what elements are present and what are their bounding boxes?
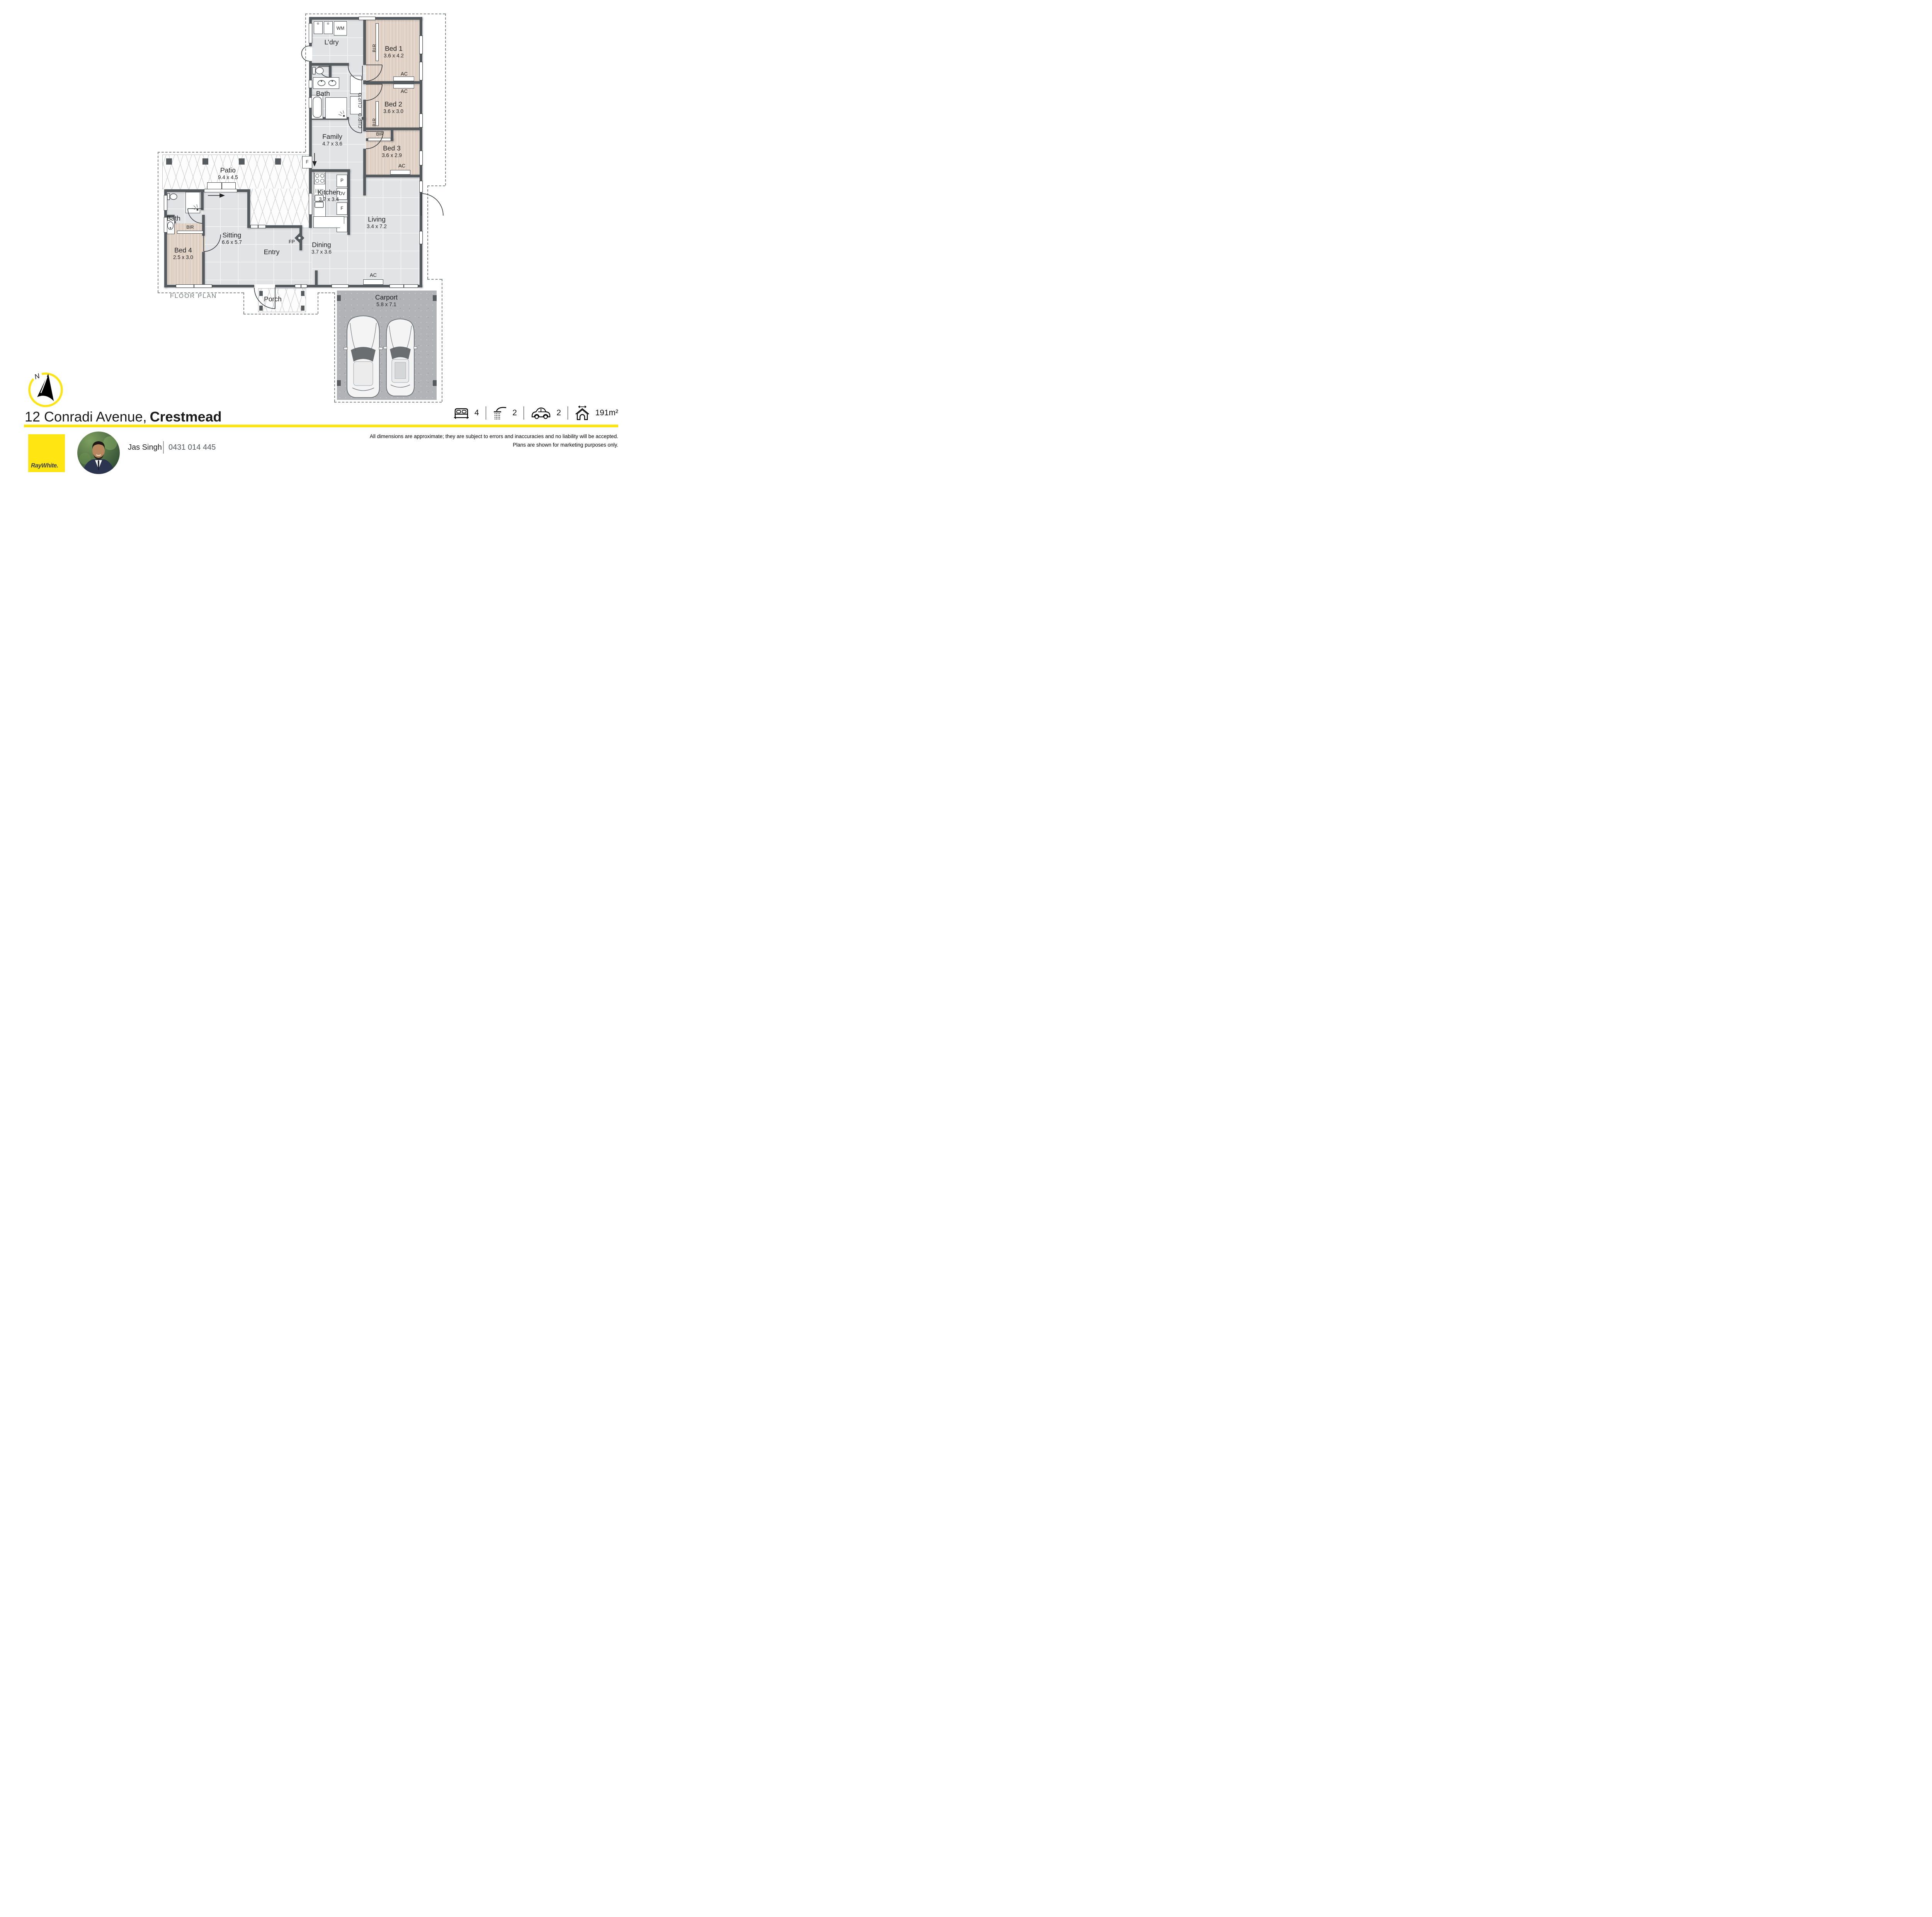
window-bed1-b bbox=[419, 62, 423, 80]
address-suburb: Crestmead bbox=[150, 409, 222, 425]
bir4-panel bbox=[177, 231, 203, 234]
carport-post-4 bbox=[433, 380, 437, 386]
window-bath2-left bbox=[164, 195, 167, 211]
porch-post-1 bbox=[259, 291, 263, 296]
porch-post-2 bbox=[301, 291, 304, 296]
summary-divider-1 bbox=[486, 406, 486, 420]
summary-divider-2 bbox=[524, 406, 524, 420]
car-icon bbox=[531, 407, 551, 419]
laundry-tub-2 bbox=[324, 21, 333, 34]
house-area-icon bbox=[575, 406, 590, 420]
window-entry-b bbox=[301, 284, 307, 288]
boundary-patio-top bbox=[158, 152, 305, 153]
boundary-right-mid bbox=[427, 185, 428, 279]
wall-nook-right bbox=[329, 66, 332, 77]
fp-label: FP bbox=[289, 239, 295, 245]
wall-bed1-bed2 bbox=[366, 81, 420, 84]
wall-bir3-stub bbox=[391, 130, 393, 141]
room-label-bath2: Bath bbox=[167, 215, 180, 223]
wall-bed3-bottom bbox=[363, 175, 420, 177]
patio-post-1 bbox=[166, 158, 172, 165]
showers-count: 2 bbox=[512, 408, 517, 418]
ac-dining-label: AC bbox=[370, 272, 377, 278]
fridge-family: F bbox=[302, 156, 312, 168]
pantry: P bbox=[337, 175, 347, 187]
boundary-right-step bbox=[427, 185, 445, 186]
boundary-top bbox=[305, 14, 445, 14]
boundary-porch-left bbox=[243, 292, 244, 314]
washing-machine-label: WM bbox=[337, 26, 344, 31]
boundary-right-upper bbox=[445, 14, 446, 185]
bir1-panel bbox=[376, 23, 379, 61]
patio-post-3 bbox=[239, 158, 245, 165]
step-b bbox=[222, 182, 236, 189]
ac-unit-dining bbox=[363, 279, 383, 285]
laundry-tub-1 bbox=[314, 21, 323, 34]
window-living-a bbox=[419, 181, 423, 192]
ac-unit-bed1 bbox=[393, 76, 414, 81]
window-patiocol-a bbox=[250, 225, 258, 228]
window-living-c bbox=[389, 284, 404, 288]
flyer-page: WM F P OV F bbox=[0, 0, 635, 479]
porch-post-3 bbox=[259, 306, 263, 311]
agent-separator bbox=[163, 441, 164, 454]
wall-bwing-top-a bbox=[164, 189, 205, 192]
wall-patiocol-left bbox=[247, 189, 250, 228]
bir-bed4-label: BIR bbox=[186, 225, 194, 230]
slider-sitting bbox=[204, 189, 237, 192]
bir3-panel bbox=[368, 138, 391, 141]
window-bed3 bbox=[419, 151, 423, 165]
disclaimer: All dimensions are approximate; they are… bbox=[301, 432, 618, 449]
floor-area: 191m² bbox=[595, 408, 618, 418]
bir-bed1-label: BIR bbox=[372, 44, 377, 52]
address-street: 12 Conradi Avenue, bbox=[25, 409, 147, 425]
room-label-carport: Carport 5.8 x 7.1 bbox=[375, 294, 398, 308]
room-label-sitting: Sitting 6.6 x 5.7 bbox=[222, 232, 242, 245]
boundary-carport-bottom bbox=[334, 402, 442, 403]
basin-counter bbox=[313, 77, 339, 89]
cars-count: 2 bbox=[556, 408, 561, 418]
carport-post-2 bbox=[433, 295, 437, 301]
washing-machine: WM bbox=[334, 21, 347, 36]
room-label-entry: Entry bbox=[264, 248, 280, 256]
door-arc-living-ext bbox=[421, 194, 443, 216]
fridge-kitchen: F bbox=[337, 202, 347, 215]
boundary-porch-bottom bbox=[243, 314, 318, 314]
window-bed4-b bbox=[194, 284, 212, 288]
porch-post-4 bbox=[301, 306, 304, 311]
pantry-label: P bbox=[340, 178, 344, 183]
room-label-patio: Patio 9.4 x 4.5 bbox=[218, 167, 238, 180]
cupd-1-label: CUP’D bbox=[358, 92, 363, 108]
disclaimer-line-1: All dimensions are approximate; they are… bbox=[301, 432, 618, 441]
window-bed4-a bbox=[176, 284, 194, 288]
boundary-carport-left bbox=[334, 292, 335, 402]
window-top bbox=[359, 17, 376, 20]
room-label-bed2: Bed 2 3.6 x 3.0 bbox=[383, 101, 403, 114]
patio-deck-right bbox=[250, 189, 309, 228]
kitchen-island bbox=[313, 216, 344, 228]
shower-bath1 bbox=[325, 97, 347, 119]
room-label-living: Living 3.4 x 7.2 bbox=[367, 216, 387, 229]
window-bath1-a bbox=[309, 80, 312, 88]
wall-kitchen-right bbox=[347, 169, 350, 235]
window-laundry-left bbox=[309, 23, 312, 43]
window-bed1-a bbox=[419, 36, 423, 54]
wall-laundry-bath bbox=[312, 63, 349, 66]
raywhite-logo: RayWhite. bbox=[28, 434, 65, 472]
window-bed2 bbox=[419, 114, 423, 127]
patio-post-4 bbox=[275, 158, 281, 165]
north-needle bbox=[37, 373, 58, 401]
property-address: 12 Conradi Avenue,Crestmead bbox=[25, 409, 222, 425]
wall-divider-1 bbox=[363, 20, 366, 65]
carport-post-3 bbox=[337, 380, 341, 386]
carport-post-1 bbox=[337, 295, 341, 301]
wall-fp-stub bbox=[299, 225, 302, 250]
wall-entry-stub bbox=[315, 270, 318, 285]
step-a bbox=[207, 182, 222, 189]
window-entry-a bbox=[295, 284, 301, 288]
shower-bath2 bbox=[185, 192, 200, 213]
property-summary: 4 2 2 191m² bbox=[453, 406, 618, 420]
agent-name: Jas Singh bbox=[128, 443, 162, 452]
summary-divider-3 bbox=[568, 406, 568, 420]
raywhite-logo-text: RayWhite. bbox=[31, 462, 58, 469]
room-label-dining: Dining 3.7 x 3.6 bbox=[311, 241, 332, 255]
floor-plan-caption: FLOOR PLAN bbox=[170, 293, 217, 300]
room-label-ldry: L’dry bbox=[325, 39, 339, 46]
bed-icon bbox=[453, 407, 469, 419]
north-letter: N bbox=[34, 372, 41, 381]
fridge-kitchen-label: F bbox=[340, 206, 343, 211]
cooktop bbox=[314, 173, 325, 184]
wall-divider-4 bbox=[363, 149, 366, 195]
agent-phone: 0431 014 445 bbox=[168, 443, 216, 452]
wall-bed4-right-lower bbox=[202, 252, 205, 285]
room-label-bed4: Bed 4 2.5 x 3.0 bbox=[173, 247, 193, 260]
bir-bed2-label: BIR bbox=[372, 118, 377, 126]
room-label-kitchen: Kitchen 3.7 x 3.4 bbox=[318, 189, 340, 202]
room-label-bed3: Bed 3 3.6 x 2.9 bbox=[382, 145, 402, 158]
wall-divider-2 bbox=[363, 80, 366, 84]
ac-unit-bed3 bbox=[390, 170, 410, 175]
wall-divider-3 bbox=[363, 100, 366, 131]
ac-unit-bed2 bbox=[393, 84, 414, 88]
north-compass: N bbox=[24, 368, 67, 411]
boundary-patio-left bbox=[158, 152, 158, 292]
ac-bed2-label: AC bbox=[401, 88, 408, 94]
yellow-rule bbox=[24, 425, 618, 427]
ac-bed1-label: AC bbox=[401, 71, 408, 77]
wall-kitchen-top bbox=[312, 169, 350, 172]
room-label-family: Family 4.7 x 3.6 bbox=[322, 133, 342, 147]
fridge-family-label: F bbox=[306, 160, 308, 165]
window-patiocol-b bbox=[258, 225, 266, 228]
window-living-b bbox=[419, 231, 423, 244]
wall-bed2-bed3 bbox=[366, 127, 420, 130]
room-label-bed1: Bed 1 3.6 x 4.2 bbox=[384, 45, 404, 59]
window-living-d bbox=[404, 284, 418, 288]
bir-bed3-label: BIR bbox=[376, 132, 383, 137]
room-label-bath1: Bath bbox=[316, 90, 330, 98]
boundary-porch-carport bbox=[318, 292, 334, 293]
boundary-step-right bbox=[427, 279, 442, 280]
disclaimer-line-2: Plans are shown for marketing purposes o… bbox=[301, 441, 618, 449]
cupd-2-label: CUP’D bbox=[358, 113, 363, 128]
boundary-porch-right bbox=[318, 292, 318, 314]
cupboard-1 bbox=[350, 76, 362, 94]
wall-bath2-right bbox=[201, 191, 204, 210]
bathtub bbox=[311, 95, 323, 119]
beds-count: 4 bbox=[474, 408, 479, 418]
patio-post-2 bbox=[202, 158, 208, 165]
ac-bed3-label: AC bbox=[398, 163, 405, 169]
boundary-left-upper bbox=[305, 14, 306, 152]
window-dining bbox=[332, 284, 349, 288]
agent-photo bbox=[77, 432, 120, 474]
window-kitchen-patio bbox=[309, 193, 312, 215]
agent-photo-image bbox=[77, 432, 120, 474]
room-label-porch: Porch bbox=[264, 296, 282, 303]
shower-icon bbox=[493, 406, 507, 420]
boundary-carport-right bbox=[442, 279, 442, 402]
